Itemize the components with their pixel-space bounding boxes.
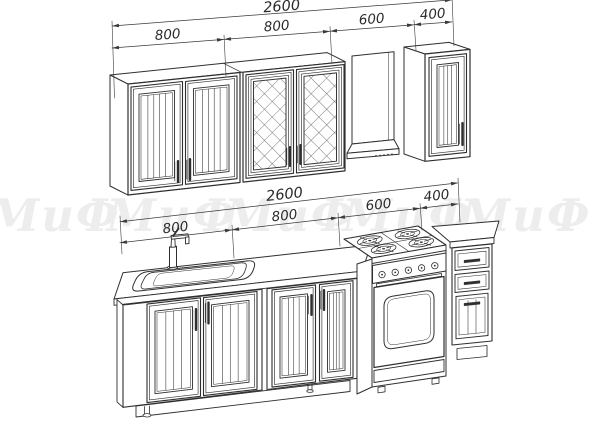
kitchen-drawing-canvas: МиФ МиФ МиФ МиФ МиФ 2600 800 800 600 400… [0, 0, 600, 424]
dim-top-overall: 2600 [263, 0, 301, 16]
base-cabinet-sink [117, 289, 262, 407]
base-cabinet-drawers [452, 244, 492, 360]
dim-bottom-segment-800a: 800 [162, 219, 189, 238]
base-cabinet-middle [267, 279, 357, 390]
dim-top-segment-400: 400 [419, 6, 446, 24]
wall-cabinet-glass [243, 62, 345, 182]
dim-bottom-segment-600: 600 [365, 196, 392, 215]
kitchen-technical-drawing-page: МиФ МиФ МиФ МиФ МиФ 2600 800 800 600 400… [0, 0, 600, 424]
dimension-labels-top: 2600 800 800 600 400 [154, 0, 446, 44]
wall-cabinet-right [404, 42, 470, 161]
dim-top-segment-600: 600 [358, 11, 385, 29]
dim-bottom-segment-400: 400 [423, 187, 450, 206]
wall-cabinet-left [128, 73, 240, 196]
left-end-panel [110, 75, 128, 195]
dim-top-segment-800a: 800 [154, 26, 181, 44]
dim-top-segment-800b: 800 [263, 18, 290, 36]
watermark-text: МиФ [0, 189, 121, 242]
dim-bottom-segment-800b: 800 [271, 207, 298, 226]
range-hood [347, 52, 399, 159]
